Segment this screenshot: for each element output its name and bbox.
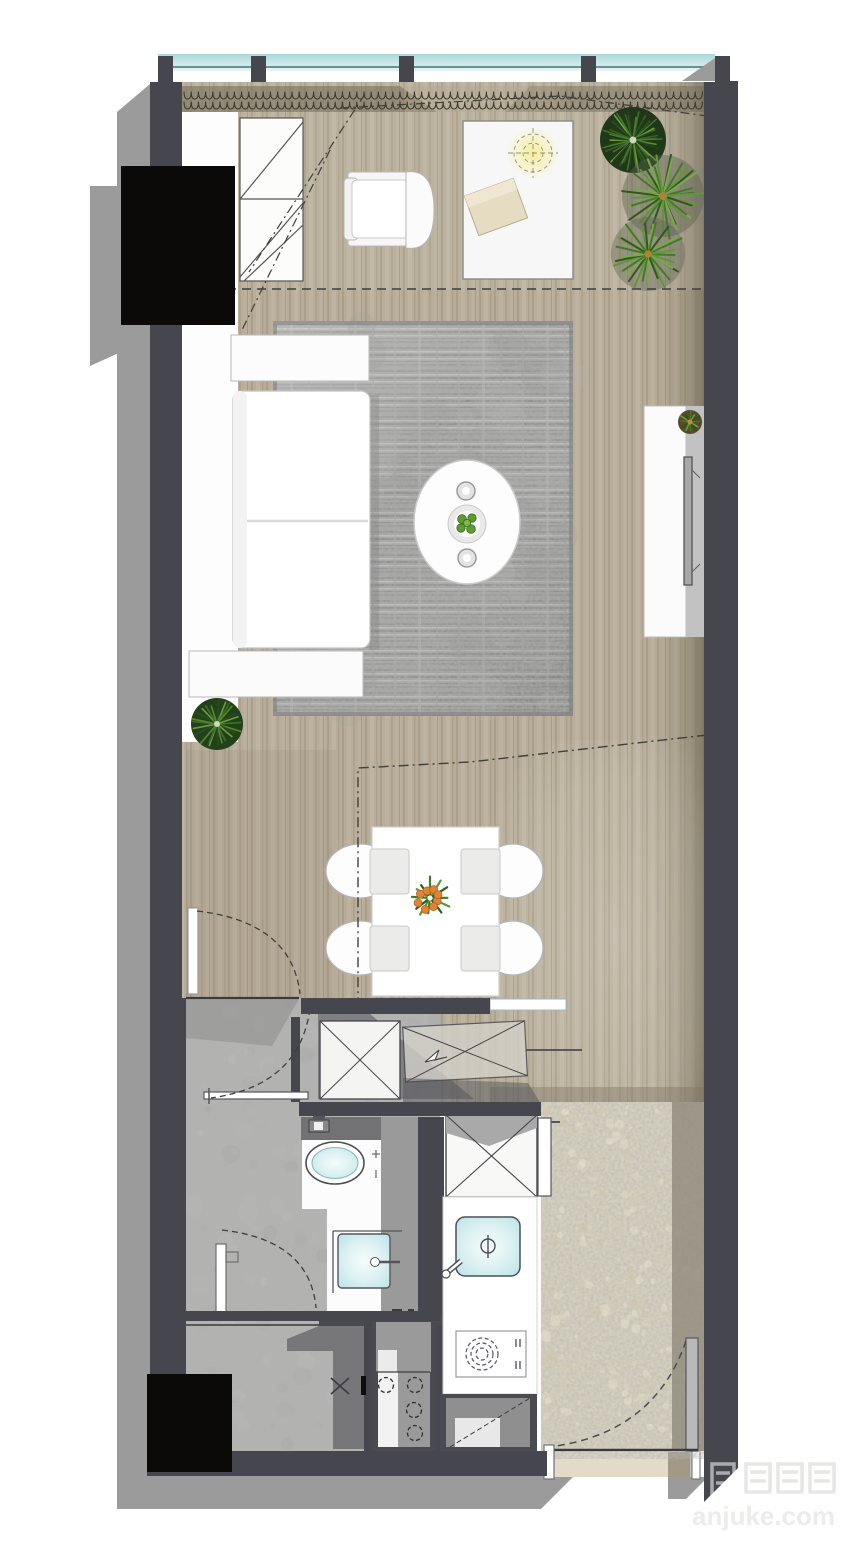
svg-text:anjuke.com: anjuke.com — [692, 1501, 835, 1531]
